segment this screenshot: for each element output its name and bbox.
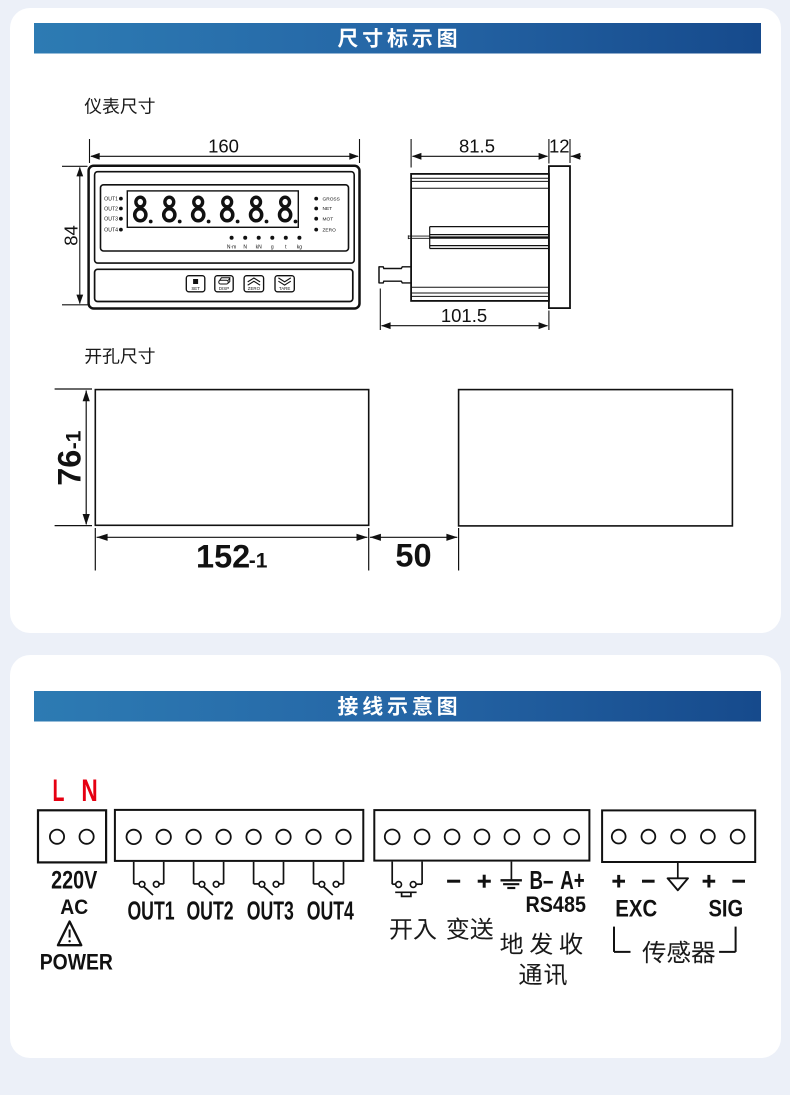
svg-text:OUT2: OUT2 [104,206,118,212]
svg-text:OUT4: OUT4 [307,896,355,925]
svg-text:kN: kN [256,244,263,250]
svg-text:N: N [243,244,247,250]
svg-text:L: L [52,772,64,808]
svg-text:POWER: POWER [40,950,113,975]
svg-text:MOT: MOT [323,216,334,222]
svg-text:-1: -1 [249,549,268,572]
svg-text:50: 50 [395,538,431,574]
svg-text:GROSS: GROSS [323,196,340,202]
svg-text:EXC: EXC [615,895,657,922]
svg-text:12: 12 [549,135,570,156]
svg-text:TARE: TARE [279,286,290,291]
svg-text:AC: AC [60,895,88,919]
svg-text:220V: 220V [51,866,97,894]
svg-text:OUT3: OUT3 [104,217,118,223]
svg-text:OUT3: OUT3 [247,896,294,925]
svg-text:SET: SET [191,286,200,291]
svg-text:ZERO: ZERO [248,286,261,291]
svg-text:84: 84 [60,225,81,246]
svg-text:N·m: N·m [227,244,236,250]
svg-text:SIG: SIG [708,895,743,922]
svg-text:OUT1: OUT1 [104,196,118,202]
svg-text:g: g [271,244,274,250]
svg-text:RS485: RS485 [525,893,586,917]
svg-text:OUT1: OUT1 [127,896,174,925]
svg-text:N: N [81,772,97,808]
svg-text:101.5: 101.5 [441,305,487,326]
svg-text:NET: NET [323,206,333,212]
svg-text:81.5: 81.5 [459,135,495,156]
svg-text:kg: kg [297,244,303,250]
svg-text:OUT2: OUT2 [186,896,233,925]
svg-text:152: 152 [196,538,250,574]
svg-text:DISP: DISP [219,286,229,291]
svg-text:76: 76 [52,450,88,486]
svg-text:ZERO: ZERO [323,227,337,233]
svg-text:B–: B– [530,865,554,895]
svg-text:-1: -1 [63,430,86,449]
svg-text:A+: A+ [560,865,584,895]
svg-text:OUT4: OUT4 [104,227,118,233]
svg-text:160: 160 [208,135,239,156]
